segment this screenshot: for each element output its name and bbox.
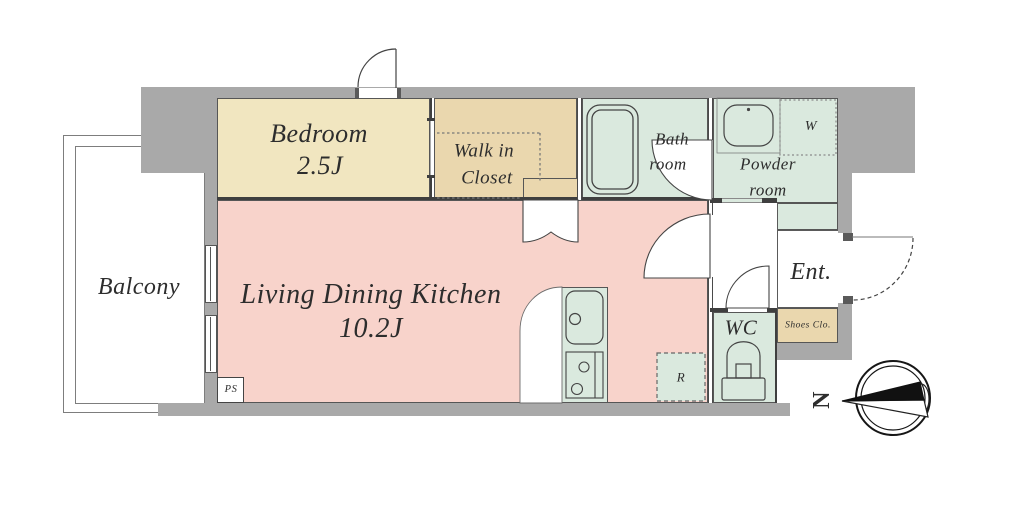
floorplan-canvas: Bedroom 2.5J Walk in Closet Living Dinin… bbox=[0, 0, 1010, 517]
closet-double-door-icon bbox=[523, 200, 578, 242]
powder-room-label-line2: room bbox=[749, 182, 786, 199]
fixtures-overlay bbox=[0, 0, 1010, 517]
bedroom-label: Bedroom bbox=[270, 121, 368, 147]
kitchen-icons bbox=[520, 287, 603, 403]
kitchen-floor-area bbox=[520, 287, 562, 403]
walk-in-closet-label-line2: Closet bbox=[461, 169, 513, 188]
wc-door-icon bbox=[726, 266, 769, 308]
bedroom-door-icon bbox=[358, 49, 396, 88]
bathroom-label-line1: Bath bbox=[655, 131, 689, 148]
compass-icon bbox=[842, 361, 930, 435]
bedroom-size-label: 2.5J bbox=[297, 153, 343, 179]
ldk-door-icon bbox=[644, 214, 710, 278]
powder-room-label-line1: Powder bbox=[740, 156, 796, 173]
walk-in-closet-label-line1: Walk in bbox=[454, 142, 514, 161]
bathroom-label-line2: room bbox=[649, 156, 686, 173]
kitchen-stove-icon bbox=[566, 352, 603, 398]
entrance-label: Ent. bbox=[790, 260, 831, 284]
powder-sink-icon bbox=[717, 98, 780, 153]
kitchen-sink-icon bbox=[566, 291, 603, 344]
ldk-label: Living Dining Kitchen bbox=[241, 281, 502, 309]
balcony-label: Balcony bbox=[98, 275, 180, 299]
bathtub-icon bbox=[587, 105, 638, 194]
wc-label: WC bbox=[725, 318, 758, 339]
toilet-icon bbox=[722, 342, 765, 400]
washer-label: W bbox=[805, 120, 817, 134]
entrance-door-icon bbox=[852, 237, 913, 300]
ldk-size-label: 10.2J bbox=[339, 315, 403, 343]
shoes-closet-label: Shoes Clo. bbox=[785, 321, 831, 331]
pipe-space-label: PS bbox=[225, 385, 238, 396]
refrigerator-label: R bbox=[677, 371, 685, 384]
compass-north-label: N bbox=[810, 391, 834, 409]
